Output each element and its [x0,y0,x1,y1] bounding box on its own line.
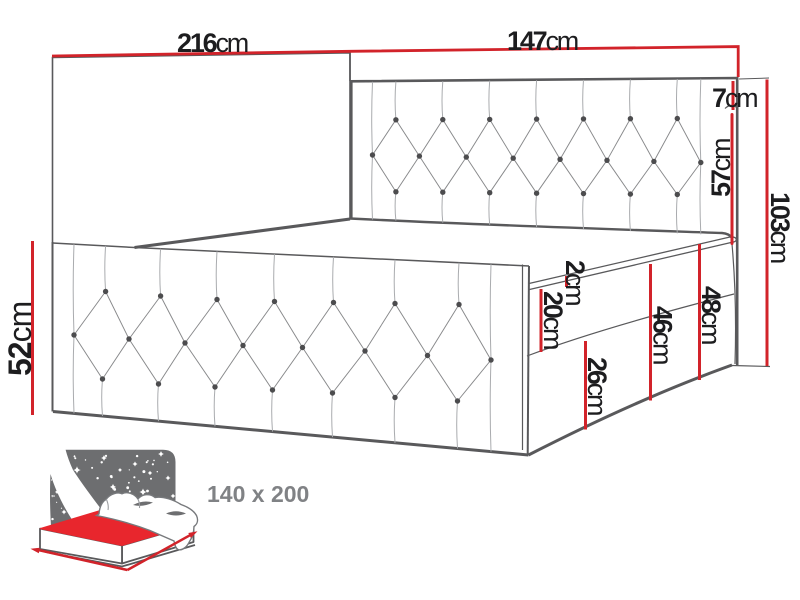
svg-text:26cm: 26cm [582,357,612,415]
svg-text:216cm: 216cm [177,28,248,58]
svg-text:147cm: 147cm [507,26,578,56]
svg-text:57cm: 57cm [706,139,736,197]
svg-text:20cm: 20cm [538,291,568,349]
svg-text:48cm: 48cm [696,286,726,344]
svg-text:140 x 200: 140 x 200 [207,481,309,507]
svg-text:7cm: 7cm [712,83,757,113]
svg-text:46cm: 46cm [648,306,678,364]
svg-text:52cm: 52cm [2,302,38,376]
svg-text:103cm: 103cm [765,192,795,263]
